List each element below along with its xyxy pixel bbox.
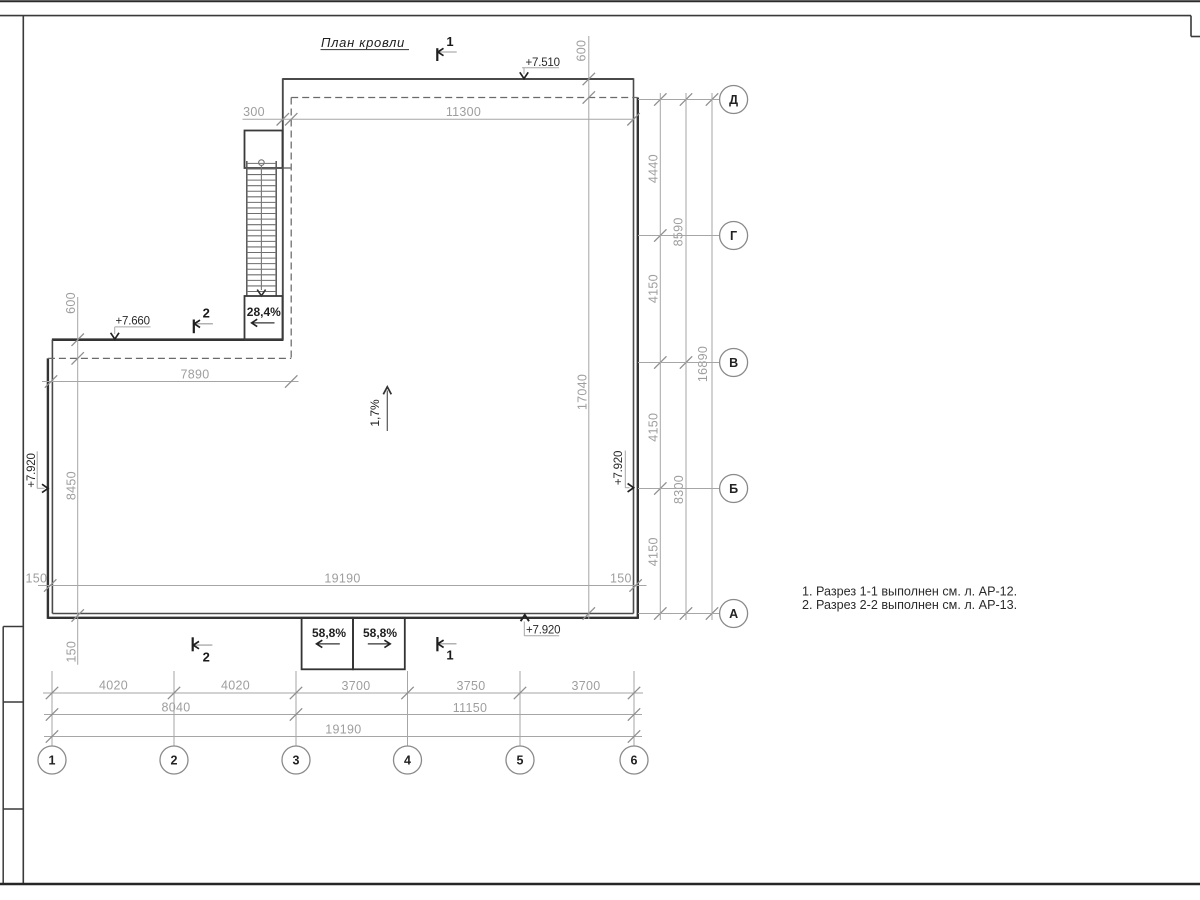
svg-text:16890: 16890	[696, 346, 710, 382]
svg-text:План кровли: План кровли	[321, 35, 405, 50]
svg-text:1. Разрез 1-1 выполнен см. л.: 1. Разрез 1-1 выполнен см. л. АР-12.	[802, 585, 1017, 599]
svg-text:2. Разрез 2-2 выполнен см. л.: 2. Разрез 2-2 выполнен см. л. АР-13.	[802, 598, 1017, 612]
svg-text:Д: Д	[729, 93, 738, 107]
svg-text:А: А	[729, 607, 738, 621]
svg-text:8590: 8590	[671, 217, 685, 246]
svg-text:1: 1	[446, 648, 453, 663]
svg-text:8300: 8300	[672, 475, 686, 504]
svg-text:4020: 4020	[99, 678, 128, 692]
svg-text:4150: 4150	[647, 537, 661, 566]
svg-text:150: 150	[65, 641, 79, 663]
svg-text:+7.660: +7.660	[116, 316, 150, 328]
svg-text:8450: 8450	[65, 471, 79, 500]
svg-text:Г: Г	[730, 229, 737, 243]
svg-text:600: 600	[64, 292, 78, 314]
svg-text:3700: 3700	[341, 679, 370, 693]
svg-text:2: 2	[171, 754, 178, 768]
svg-text:4020: 4020	[221, 678, 250, 692]
svg-text:4440: 4440	[647, 154, 661, 183]
svg-text:+7.510: +7.510	[526, 57, 560, 69]
svg-text:+7.920: +7.920	[526, 624, 560, 636]
svg-text:+7.920: +7.920	[26, 453, 38, 487]
svg-text:5: 5	[517, 754, 524, 768]
svg-text:28,4%: 28,4%	[247, 305, 281, 319]
svg-text:3750: 3750	[456, 679, 485, 693]
svg-text:4: 4	[404, 754, 411, 768]
svg-text:2: 2	[203, 650, 210, 665]
svg-text:19190: 19190	[325, 722, 361, 736]
svg-text:3: 3	[293, 754, 300, 768]
svg-text:3700: 3700	[571, 679, 600, 693]
svg-text:6: 6	[631, 754, 638, 768]
svg-text:150: 150	[610, 571, 632, 585]
svg-text:600: 600	[575, 40, 589, 62]
svg-text:1: 1	[446, 34, 453, 49]
svg-text:17040: 17040	[576, 374, 590, 410]
svg-text:7890: 7890	[180, 368, 209, 382]
svg-text:+7.920: +7.920	[613, 451, 625, 485]
svg-text:19190: 19190	[324, 571, 360, 585]
svg-text:11150: 11150	[453, 701, 487, 715]
svg-text:4150: 4150	[647, 413, 661, 442]
svg-text:В: В	[729, 356, 738, 370]
svg-text:4150: 4150	[647, 274, 661, 303]
svg-text:300: 300	[243, 105, 265, 119]
svg-text:11300: 11300	[446, 105, 481, 119]
svg-text:8040: 8040	[161, 700, 190, 714]
svg-text:150: 150	[26, 571, 48, 585]
svg-text:58,8%: 58,8%	[312, 626, 346, 640]
svg-text:1,7%: 1,7%	[368, 399, 382, 427]
svg-text:58,8%: 58,8%	[363, 626, 397, 640]
svg-text:2: 2	[203, 306, 210, 321]
svg-text:1: 1	[49, 754, 56, 768]
svg-text:Б: Б	[729, 482, 738, 496]
